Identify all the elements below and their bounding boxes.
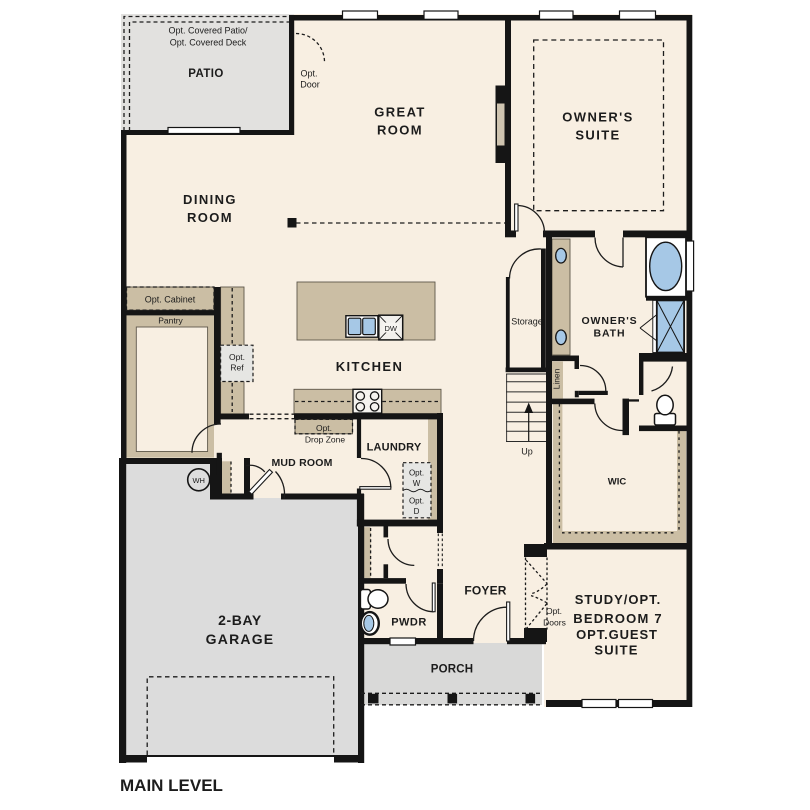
svg-text:Up: Up: [521, 447, 533, 457]
svg-text:Opt.: Opt.: [300, 69, 317, 79]
svg-text:SUITE: SUITE: [594, 643, 638, 658]
svg-text:Opt.: Opt.: [316, 423, 332, 433]
svg-text:OWNER'S: OWNER'S: [562, 110, 633, 125]
svg-text:WH: WH: [192, 476, 205, 485]
svg-text:FOYER: FOYER: [464, 584, 506, 598]
svg-text:GARAGE: GARAGE: [206, 631, 275, 647]
svg-text:Opt.: Opt.: [409, 469, 424, 478]
svg-text:Opt.: Opt.: [409, 497, 424, 506]
svg-text:Pantry: Pantry: [158, 316, 183, 326]
svg-text:MAIN LEVEL: MAIN LEVEL: [120, 776, 223, 795]
svg-text:W: W: [413, 479, 421, 488]
svg-text:WIC: WIC: [608, 477, 627, 488]
svg-text:PATIO: PATIO: [188, 68, 223, 80]
svg-text:D: D: [414, 507, 420, 516]
svg-text:Door: Door: [300, 80, 320, 90]
svg-text:KITCHEN: KITCHEN: [336, 359, 404, 374]
svg-text:Opt. Cabinet: Opt. Cabinet: [145, 295, 196, 305]
svg-text:Drop Zone: Drop Zone: [305, 435, 345, 445]
svg-text:OPT.GUEST: OPT.GUEST: [576, 627, 658, 642]
svg-text:ROOM: ROOM: [377, 123, 423, 138]
svg-text:OWNER'S: OWNER'S: [581, 315, 637, 327]
svg-text:DINING: DINING: [183, 192, 237, 207]
svg-text:Linen: Linen: [552, 368, 562, 389]
svg-text:GREAT: GREAT: [374, 105, 426, 120]
svg-text:BEDROOM 7: BEDROOM 7: [573, 611, 663, 626]
svg-text:2-BAY: 2-BAY: [218, 612, 262, 628]
svg-text:Opt.: Opt.: [546, 606, 562, 616]
svg-text:MUD ROOM: MUD ROOM: [271, 457, 332, 469]
svg-text:Opt. Covered Patio/: Opt. Covered Patio/: [168, 26, 248, 36]
svg-text:ROOM: ROOM: [187, 210, 233, 225]
svg-text:DW: DW: [384, 324, 397, 333]
svg-text:BATH: BATH: [594, 328, 626, 340]
svg-text:Opt. Covered Deck: Opt. Covered Deck: [170, 38, 247, 48]
svg-text:SUITE: SUITE: [575, 128, 620, 143]
svg-text:LAUNDRY: LAUNDRY: [367, 442, 422, 454]
svg-text:Ref: Ref: [230, 363, 244, 373]
svg-text:Opt.: Opt.: [229, 352, 245, 362]
svg-text:Storage: Storage: [511, 317, 543, 327]
svg-text:PORCH: PORCH: [431, 664, 474, 676]
svg-text:Doors: Doors: [543, 618, 566, 628]
svg-text:PWDR: PWDR: [391, 617, 427, 629]
svg-text:STUDY/OPT.: STUDY/OPT.: [575, 592, 662, 607]
